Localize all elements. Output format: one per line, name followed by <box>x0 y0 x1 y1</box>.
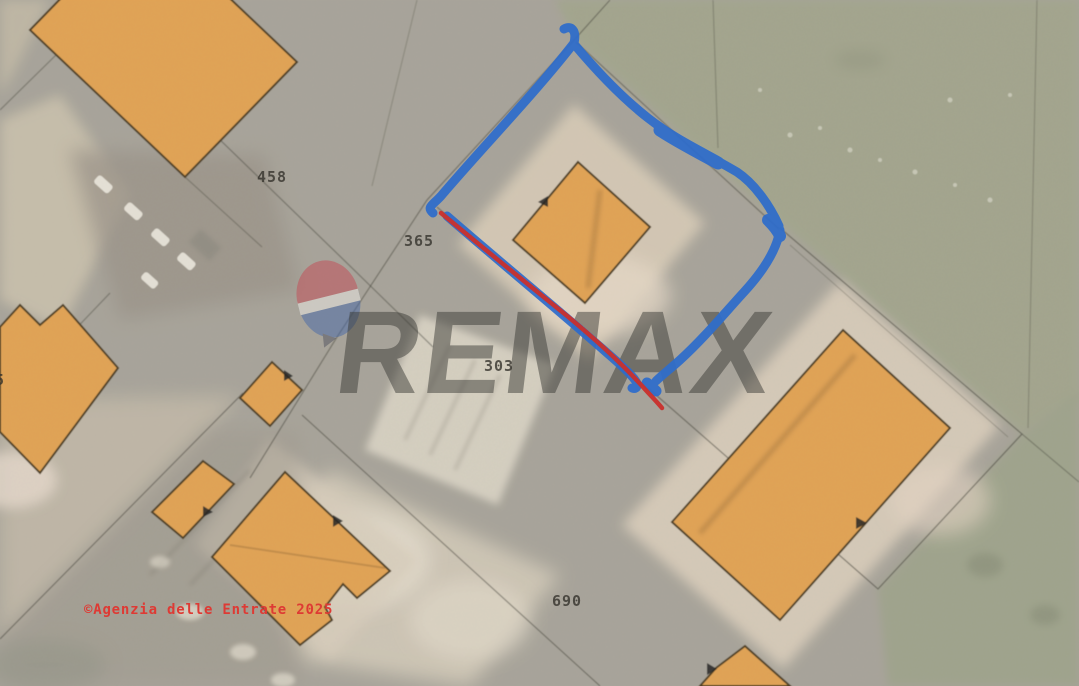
parcel-label-365: 365 <box>404 232 434 250</box>
parcel-label-303: 303 <box>484 357 514 375</box>
parcel-label-partial: 5 <box>0 371 5 389</box>
parcel-label-458: 458 <box>257 168 287 186</box>
cadastral-satellite-map: REMAX 458 365 303 690 5 ©Agenzia delle E… <box>0 0 1079 686</box>
map-canvas: REMAX 458 365 303 690 5 ©Agenzia delle E… <box>0 0 1079 686</box>
parcel-label-690: 690 <box>552 592 582 610</box>
copyright-notice: ©Agenzia delle Entrate 2025 <box>84 602 333 618</box>
